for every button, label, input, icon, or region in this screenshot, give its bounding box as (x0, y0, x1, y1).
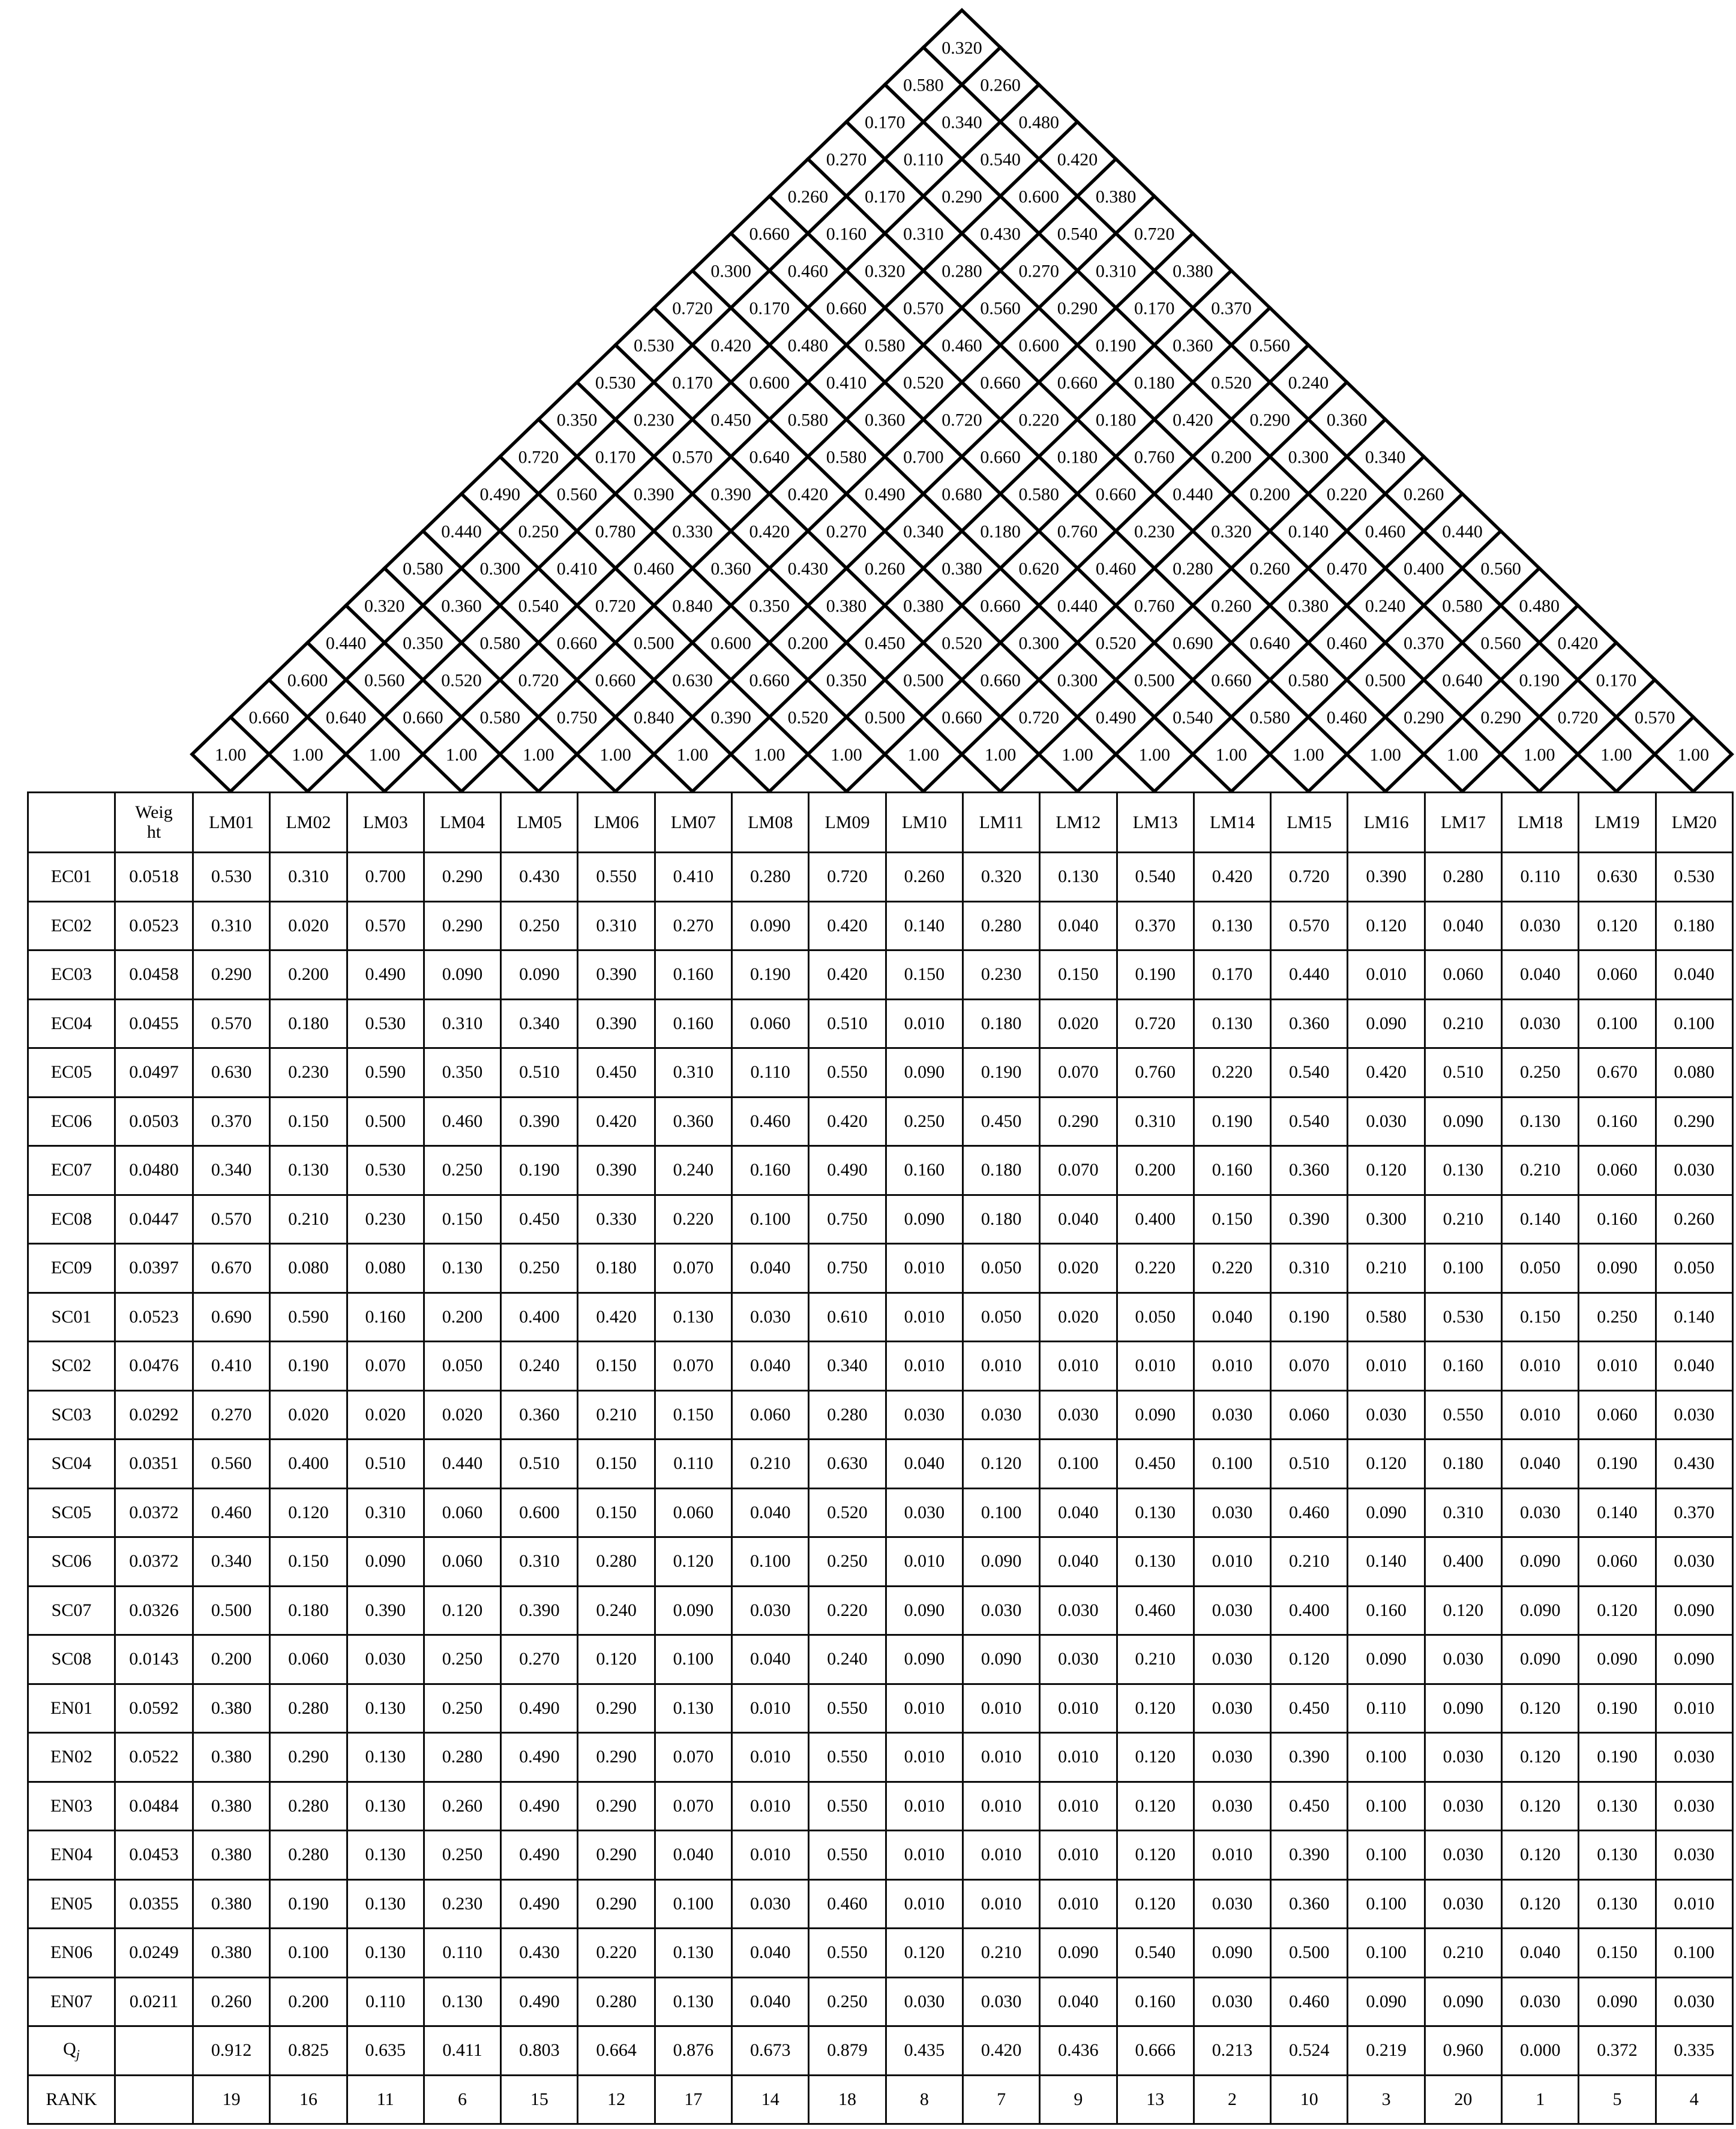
cell-EC09-LM02: 0.080 (270, 1244, 347, 1293)
cell-EN03-LM16: 0.100 (1348, 1782, 1425, 1831)
cell-EN07-LM01: 0.260 (193, 1977, 270, 2026)
roof-cell-LM16-LM18-value: 0.640 (1442, 671, 1483, 691)
cell-EN04-LM06: 0.290 (578, 1831, 655, 1880)
roof-cell-LM11-LM14-value: 0.520 (1096, 634, 1137, 653)
cell-SC05-LM16: 0.090 (1348, 1488, 1425, 1537)
roof-cell-LM02-LM18-value: 0.110 (904, 150, 943, 170)
cell-EN05-LM05: 0.490 (501, 1879, 578, 1929)
roof-cell-LM08-LM14-value: 0.180 (980, 522, 1021, 542)
cell-EN03-LM19: 0.130 (1579, 1782, 1656, 1831)
cell-EC08-LM18: 0.140 (1502, 1195, 1579, 1244)
roof-cell-LM07-LM08-value: 0.390 (710, 708, 751, 728)
cell-SC03-LM10: 0.030 (886, 1390, 963, 1440)
cell-EC05-LM18: 0.250 (1502, 1048, 1579, 1098)
cell-EN05-LM19: 0.130 (1579, 1879, 1656, 1929)
column-header-LM12: LM12 (1040, 793, 1117, 853)
cell-EN06-LM13: 0.540 (1117, 1929, 1194, 1978)
roof-cell-LM04-LM18-value: 0.430 (980, 224, 1021, 244)
cell-SC03-LM05: 0.360 (501, 1390, 578, 1440)
cell-EC06-LM13: 0.310 (1117, 1097, 1194, 1146)
cell-SC03-LM13: 0.090 (1117, 1390, 1194, 1440)
cell-SC01-LM17: 0.530 (1425, 1293, 1501, 1342)
cell-EN02-LM04: 0.280 (424, 1733, 500, 1782)
cell-SC01-LM02: 0.590 (270, 1293, 347, 1342)
score-LM13: 0.666 (1117, 2026, 1194, 2076)
roof-cell-LM01-LM15-value: 0.660 (749, 224, 790, 244)
cell-SC06-LM08: 0.100 (732, 1537, 809, 1587)
cell-EN06-LM07: 0.130 (655, 1929, 731, 1978)
cell-EN02-LM05: 0.490 (501, 1733, 578, 1782)
cell-EN07-LM12: 0.040 (1040, 1977, 1117, 2026)
cell-EC02-LM01: 0.310 (193, 901, 270, 950)
cell-EC01-LM10: 0.260 (886, 853, 963, 902)
roof-cell-LM01-LM13-value: 0.720 (672, 299, 713, 319)
cell-SC01-LM13: 0.050 (1117, 1293, 1194, 1342)
roof-cell-LM03-LM13-value: 0.600 (749, 373, 790, 393)
roof-cell-LM08-diagonal-value: 1.00 (754, 745, 785, 765)
cell-EC01-LM01: 0.530 (193, 853, 270, 902)
roof-cell-LM05-LM06-value: 0.750 (557, 708, 598, 728)
roof-cell-LM03-diagonal-value: 1.00 (369, 745, 401, 765)
cell-EC03-LM02: 0.200 (270, 950, 347, 1000)
roof-cell-LM03-LM18-value: 0.290 (942, 187, 982, 207)
row-label-SC06: SC06 (28, 1537, 115, 1587)
roof-cell-LM02-LM14-value: 0.170 (749, 299, 790, 319)
cell-SC01-LM04: 0.200 (424, 1293, 500, 1342)
roof-cell-LM16-diagonal-value: 1.00 (1369, 745, 1401, 765)
roof-cell-LM10-LM16-value: 0.230 (1134, 522, 1175, 542)
cell-EC09-LM11: 0.050 (963, 1244, 1039, 1293)
cell-EC07-LM12: 0.070 (1040, 1146, 1117, 1195)
cell-EC04-LM02: 0.180 (270, 999, 347, 1048)
cell-EN06-LM02: 0.100 (270, 1929, 347, 1978)
roof-cell-LM04-LM11-value: 0.390 (710, 485, 751, 505)
roof-cell-LM06-LM08-value: 0.630 (672, 671, 713, 691)
cell-EN02-LM01: 0.380 (193, 1733, 270, 1782)
cell-EC04-LM16: 0.090 (1348, 999, 1425, 1048)
row-EC09: EC090.03970.6700.0800.0800.1300.2500.180… (28, 1244, 1733, 1293)
cell-EC05-LM05: 0.510 (501, 1048, 578, 1098)
table-body: EC010.05180.5300.3100.7000.2900.4300.550… (28, 853, 1733, 2124)
row-label-EC03: EC03 (28, 950, 115, 1000)
row-rank: RANK1916116151217141887913210320154 (28, 2075, 1733, 2124)
cell-EN04-LM02: 0.280 (270, 1831, 347, 1880)
roof-cell-LM02-LM19-value: 0.340 (942, 113, 982, 133)
cell-SC06-LM19: 0.060 (1579, 1537, 1656, 1587)
cell-EC06-LM01: 0.370 (193, 1097, 270, 1146)
rank-LM07: 17 (655, 2075, 731, 2124)
cell-EC07-LM19: 0.060 (1579, 1146, 1656, 1195)
roof-cell-LM07-LM16-value: 0.220 (1019, 410, 1060, 430)
column-header-LM19: LM19 (1579, 793, 1656, 853)
cell-SC05-LM11: 0.100 (963, 1488, 1039, 1537)
roof-cell-LM07-LM14-value: 0.680 (942, 485, 982, 505)
cell-EC09-LM05: 0.250 (501, 1244, 578, 1293)
cell-EC01-LM11: 0.320 (963, 853, 1039, 902)
roof-cell-LM04-LM06-value: 0.720 (518, 671, 559, 691)
cell-EN02-LM19: 0.190 (1579, 1733, 1656, 1782)
cell-SC04-LM08: 0.210 (732, 1440, 809, 1489)
roof-cell-LM01-LM02-value: 0.660 (249, 708, 290, 728)
cell-SC03-LM20: 0.030 (1656, 1390, 1732, 1440)
roof-cell-LM12-LM20-value: 0.340 (1365, 448, 1406, 467)
column-header-LM05: LM05 (501, 793, 578, 853)
roof-cell-LM02-LM10-value: 0.170 (595, 448, 636, 467)
cell-EC08-LM10: 0.090 (886, 1195, 963, 1244)
roof-cell-LM05-LM09-value: 0.840 (672, 596, 713, 616)
cell-SC03-LM06: 0.210 (578, 1390, 655, 1440)
roof-cell-LM10-LM12-value: 0.660 (980, 671, 1021, 691)
row-label-EC05: EC05 (28, 1048, 115, 1098)
cell-SC05-LM18: 0.030 (1502, 1488, 1579, 1537)
cell-EC04-LM15: 0.360 (1271, 999, 1348, 1048)
cell-EC05-LM01: 0.630 (193, 1048, 270, 1098)
cell-EC02-LM16: 0.120 (1348, 901, 1425, 950)
cell-SC08-LM18: 0.090 (1502, 1635, 1579, 1684)
cell-EN01-LM01: 0.380 (193, 1684, 270, 1733)
weight-EN01: 0.0592 (115, 1684, 193, 1733)
cell-SC02-LM13: 0.010 (1117, 1342, 1194, 1391)
cell-SC05-LM19: 0.140 (1579, 1488, 1656, 1537)
cell-SC08-LM16: 0.090 (1348, 1635, 1425, 1684)
cell-SC08-LM15: 0.120 (1271, 1635, 1348, 1684)
cell-SC08-LM11: 0.090 (963, 1635, 1039, 1684)
cell-EN01-LM20: 0.010 (1656, 1684, 1732, 1733)
cell-EC05-LM11: 0.190 (963, 1048, 1039, 1098)
cell-EC05-LM03: 0.590 (347, 1048, 424, 1098)
cell-EN03-LM15: 0.450 (1271, 1782, 1348, 1831)
roof-cell-LM10-LM18-value: 0.200 (1211, 448, 1252, 467)
cell-EN05-LM02: 0.190 (270, 1879, 347, 1929)
cell-SC01-LM20: 0.140 (1656, 1293, 1732, 1342)
row-label-EN02: EN02 (28, 1733, 115, 1782)
cell-EC01-LM18: 0.110 (1502, 853, 1579, 902)
roof-cell-LM01-LM18-value: 0.170 (865, 113, 906, 133)
house-of-quality-page: 0.3200.5800.2600.1700.3400.4800.2700.110… (0, 0, 1736, 2129)
cell-SC07-LM17: 0.120 (1425, 1586, 1501, 1635)
cell-EC06-LM06: 0.420 (578, 1097, 655, 1146)
cell-SC07-LM05: 0.390 (501, 1586, 578, 1635)
corner-cell (28, 793, 115, 853)
column-header-LM01: LM01 (193, 793, 270, 853)
cell-SC02-LM01: 0.410 (193, 1342, 270, 1391)
score-LM17: 0.960 (1425, 2026, 1501, 2076)
cell-SC01-LM14: 0.040 (1194, 1293, 1270, 1342)
cell-SC02-LM03: 0.070 (347, 1342, 424, 1391)
row-label-SC02: SC02 (28, 1342, 115, 1391)
cell-EN04-LM17: 0.030 (1425, 1831, 1501, 1880)
cell-EC03-LM19: 0.060 (1579, 950, 1656, 1000)
cell-SC01-LM10: 0.010 (886, 1293, 963, 1342)
cell-EN03-LM12: 0.010 (1040, 1782, 1117, 1831)
cell-SC07-LM19: 0.120 (1579, 1586, 1656, 1635)
cell-EN04-LM13: 0.120 (1117, 1831, 1194, 1880)
cell-EC07-LM01: 0.340 (193, 1146, 270, 1195)
roof-cell-LM09-LM17-value: 0.760 (1134, 448, 1175, 467)
cell-EC06-LM16: 0.030 (1348, 1097, 1425, 1146)
cell-EN03-LM03: 0.130 (347, 1782, 424, 1831)
cell-SC08-LM02: 0.060 (270, 1635, 347, 1684)
cell-EN05-LM18: 0.120 (1502, 1879, 1579, 1929)
rank-weight-blank (115, 2075, 193, 2124)
cell-EC04-LM09: 0.510 (809, 999, 886, 1048)
cell-EC02-LM10: 0.140 (886, 901, 963, 950)
cell-EN03-LM17: 0.030 (1425, 1782, 1501, 1831)
cell-EC08-LM11: 0.180 (963, 1195, 1039, 1244)
weight-SC01: 0.0523 (115, 1293, 193, 1342)
cell-SC06-LM07: 0.120 (655, 1537, 731, 1587)
cell-EC07-LM18: 0.210 (1502, 1146, 1579, 1195)
roof-cell-LM14-LM16-value: 0.580 (1288, 671, 1329, 691)
roof-cell-LM02-LM08-value: 0.250 (518, 522, 559, 542)
cell-EN03-LM02: 0.280 (270, 1782, 347, 1831)
cell-EC09-LM19: 0.090 (1579, 1244, 1656, 1293)
score-label-base: Q (63, 2039, 76, 2059)
rank-LM03: 11 (347, 2075, 424, 2124)
cell-EN05-LM11: 0.010 (963, 1879, 1039, 1929)
roof-cell-LM03-LM11-value: 0.570 (672, 448, 713, 467)
cell-SC03-LM07: 0.150 (655, 1390, 731, 1440)
roof-cell-LM12-LM16-value: 0.260 (1211, 596, 1252, 616)
cell-SC04-LM06: 0.150 (578, 1440, 655, 1489)
cell-EC06-LM19: 0.160 (1579, 1097, 1656, 1146)
cell-EC06-LM18: 0.130 (1502, 1097, 1579, 1146)
cell-SC08-LM13: 0.210 (1117, 1635, 1194, 1684)
cell-EC09-LM03: 0.080 (347, 1244, 424, 1293)
roof-cell-LM10-LM20-value: 0.240 (1288, 373, 1329, 393)
roof-cell-LM03-LM05-value: 0.520 (441, 671, 482, 691)
roof-cell-LM16-LM17-value: 0.290 (1404, 708, 1444, 728)
roof-cell-LM11-LM13-value: 0.300 (1057, 671, 1098, 691)
cell-EC03-LM06: 0.390 (578, 950, 655, 1000)
row-EN07: EN070.02110.2600.2000.1100.1300.4900.280… (28, 1977, 1733, 2026)
cell-EC03-LM12: 0.150 (1040, 950, 1117, 1000)
score-label-subscript: j (76, 2047, 80, 2062)
roof-cell-LM02-LM11-value: 0.230 (634, 410, 674, 430)
roof-cell-LM07-LM12-value: 0.260 (865, 559, 906, 579)
cell-SC06-LM16: 0.140 (1348, 1537, 1425, 1587)
cell-EC04-LM12: 0.020 (1040, 999, 1117, 1048)
cell-EN04-LM20: 0.030 (1656, 1831, 1732, 1880)
cell-EC07-LM13: 0.200 (1117, 1146, 1194, 1195)
weight-SC03: 0.0292 (115, 1390, 193, 1440)
cell-EN01-LM03: 0.130 (347, 1684, 424, 1733)
score-LM02: 0.825 (270, 2026, 347, 2076)
row-SC08: SC080.01430.2000.0600.0300.2500.2700.120… (28, 1635, 1733, 1684)
row-label-EC04: EC04 (28, 999, 115, 1048)
cell-EC02-LM08: 0.090 (732, 901, 809, 950)
roof-cell-LM05-LM16-value: 0.460 (942, 336, 982, 356)
cell-EN03-LM07: 0.070 (655, 1782, 731, 1831)
roof-cell-LM07-LM19-value: 0.170 (1134, 299, 1175, 319)
cell-SC07-LM12: 0.030 (1040, 1586, 1117, 1635)
cell-EN03-LM09: 0.550 (809, 1782, 886, 1831)
cell-EC09-LM14: 0.220 (1194, 1244, 1270, 1293)
roof-cell-LM15-LM17-value: 0.500 (1365, 671, 1406, 691)
row-label-EN06: EN06 (28, 1929, 115, 1978)
roof-cell-LM07-LM13-value: 0.340 (903, 522, 944, 542)
cell-SC02-LM15: 0.070 (1271, 1342, 1348, 1391)
cell-EC03-LM01: 0.290 (193, 950, 270, 1000)
roof-cell-LM17-LM20-value: 0.420 (1558, 634, 1599, 653)
cell-EC01-LM12: 0.130 (1040, 853, 1117, 902)
cell-SC04-LM20: 0.430 (1656, 1440, 1732, 1489)
cell-SC04-LM10: 0.040 (886, 1440, 963, 1489)
cell-EC08-LM15: 0.390 (1271, 1195, 1348, 1244)
cell-EC08-LM14: 0.150 (1194, 1195, 1270, 1244)
cell-EN06-LM06: 0.220 (578, 1929, 655, 1978)
cell-EC03-LM10: 0.150 (886, 950, 963, 1000)
cell-EC01-LM07: 0.410 (655, 853, 731, 902)
column-header-LM07: LM07 (655, 793, 731, 853)
rank-LM13: 13 (1117, 2075, 1194, 2124)
cell-EC07-LM20: 0.030 (1656, 1146, 1732, 1195)
cell-EC05-LM06: 0.450 (578, 1048, 655, 1098)
roof-cell-LM03-LM07-value: 0.540 (518, 596, 559, 616)
cell-EN06-LM03: 0.130 (347, 1929, 424, 1978)
cell-SC04-LM15: 0.510 (1271, 1440, 1348, 1489)
roof-cell-LM05-LM08-value: 0.500 (634, 634, 674, 653)
cell-SC02-LM07: 0.070 (655, 1342, 731, 1391)
cell-EC09-LM07: 0.070 (655, 1244, 731, 1293)
roof-cell-LM05-LM13-value: 0.580 (826, 448, 867, 467)
roof-cell-LM05-LM18-value: 0.270 (1019, 262, 1060, 281)
roof-cell-LM15-LM18-value: 0.370 (1404, 634, 1444, 653)
roof-cell-LM18-diagonal-value: 1.00 (1524, 745, 1555, 765)
cell-EC03-LM09: 0.420 (809, 950, 886, 1000)
cell-EN01-LM10: 0.010 (886, 1684, 963, 1733)
cell-SC07-LM13: 0.460 (1117, 1586, 1194, 1635)
cell-EC04-LM11: 0.180 (963, 999, 1039, 1048)
column-header-LM20: LM20 (1656, 793, 1732, 853)
cell-EN01-LM19: 0.190 (1579, 1684, 1656, 1733)
roof-cell-LM07-diagonal-value: 1.00 (677, 745, 709, 765)
cell-EC02-LM11: 0.280 (963, 901, 1039, 950)
cell-SC01-LM12: 0.020 (1040, 1293, 1117, 1342)
cell-EC01-LM17: 0.280 (1425, 853, 1501, 902)
cell-EN04-LM04: 0.250 (424, 1831, 500, 1880)
score-LM08: 0.673 (732, 2026, 809, 2076)
roof-cell-LM10-diagonal-value: 1.00 (908, 745, 940, 765)
cell-EC01-LM14: 0.420 (1194, 853, 1270, 902)
roof-cell-LM05-LM11-value: 0.420 (749, 522, 790, 542)
roof-cell-LM03-LM04-value: 0.660 (403, 708, 443, 728)
row-label-EC08: EC08 (28, 1195, 115, 1244)
roof-cell-LM06-LM20-value: 0.720 (1134, 224, 1175, 244)
roof-cell-LM01-LM16-value: 0.260 (788, 187, 829, 207)
cell-EN01-LM16: 0.110 (1348, 1684, 1425, 1733)
roof-cell-LM06-LM18-value: 0.290 (1057, 299, 1098, 319)
cell-SC02-LM06: 0.150 (578, 1342, 655, 1391)
cell-SC05-LM20: 0.370 (1656, 1488, 1732, 1537)
column-header-LM02: LM02 (270, 793, 347, 853)
cell-EC07-LM14: 0.160 (1194, 1146, 1270, 1195)
weight-header: Weight (115, 793, 193, 853)
row-label-EC09: EC09 (28, 1244, 115, 1293)
rank-LM11: 7 (963, 2075, 1039, 2124)
roof-cell-LM14-LM17-value: 0.460 (1327, 634, 1368, 653)
cell-EN06-LM20: 0.100 (1656, 1929, 1732, 1978)
roof-cell-LM01-LM17-value: 0.270 (826, 150, 867, 170)
weight-EC02: 0.0523 (115, 901, 193, 950)
roof-cell-LM09-LM18-value: 0.420 (1173, 410, 1213, 430)
cell-EC06-LM02: 0.150 (270, 1097, 347, 1146)
cell-SC03-LM08: 0.060 (732, 1390, 809, 1440)
cell-EN05-LM16: 0.100 (1348, 1879, 1425, 1929)
cell-EN07-LM10: 0.030 (886, 1977, 963, 2026)
cell-EC08-LM03: 0.230 (347, 1195, 424, 1244)
cell-EN01-LM02: 0.280 (270, 1684, 347, 1733)
cell-EC05-LM08: 0.110 (732, 1048, 809, 1098)
roof-cell-LM11-LM19-value: 0.300 (1288, 448, 1329, 467)
cell-EN02-LM09: 0.550 (809, 1733, 886, 1782)
cell-SC07-LM09: 0.220 (809, 1586, 886, 1635)
roof-cell-LM02-LM03-value: 0.640 (326, 708, 367, 728)
weight-EN02: 0.0522 (115, 1733, 193, 1782)
roof-cell-LM09-LM10-value: 0.500 (865, 708, 906, 728)
cell-SC03-LM17: 0.550 (1425, 1390, 1501, 1440)
cell-EN07-LM06: 0.280 (578, 1977, 655, 2026)
roof-cell-LM08-LM15-value: 0.580 (1019, 485, 1060, 505)
cell-EN02-LM08: 0.010 (732, 1733, 809, 1782)
cell-SC06-LM13: 0.130 (1117, 1537, 1194, 1587)
rank-LM04: 6 (424, 2075, 500, 2124)
row-label-SC01: SC01 (28, 1293, 115, 1342)
cell-SC05-LM14: 0.030 (1194, 1488, 1270, 1537)
roof-cell-LM02-LM09-value: 0.560 (557, 485, 598, 505)
cell-SC07-LM01: 0.500 (193, 1586, 270, 1635)
header-row: WeightLM01LM02LM03LM04LM05LM06LM07LM08LM… (28, 793, 1733, 853)
cell-SC04-LM09: 0.630 (809, 1440, 886, 1489)
row-label-SC07: SC07 (28, 1586, 115, 1635)
score-LM12: 0.436 (1040, 2026, 1117, 2076)
cell-EC05-LM19: 0.670 (1579, 1048, 1656, 1098)
cell-SC08-LM10: 0.090 (886, 1635, 963, 1684)
roof-cell-LM12-LM14-value: 0.500 (1134, 671, 1175, 691)
cell-SC06-LM01: 0.340 (193, 1537, 270, 1587)
cell-SC07-LM20: 0.090 (1656, 1586, 1732, 1635)
roof-cell-LM05-LM14-value: 0.360 (865, 410, 906, 430)
row-label-SC04: SC04 (28, 1440, 115, 1489)
roof-cell-LM17-LM19-value: 0.190 (1519, 671, 1560, 691)
cell-SC06-LM11: 0.090 (963, 1537, 1039, 1587)
cell-EC09-LM17: 0.100 (1425, 1244, 1501, 1293)
rank-LM08: 14 (732, 2075, 809, 2124)
roof-cell-LM10-LM11-value: 0.660 (942, 708, 982, 728)
roof-cell-LM11-LM16-value: 0.280 (1173, 559, 1213, 579)
roof-cell-LM01-LM09-value: 0.720 (518, 448, 559, 467)
row-SC07: SC070.03260.5000.1800.3900.1200.3900.240… (28, 1586, 1733, 1635)
cell-SC06-LM10: 0.010 (886, 1537, 963, 1587)
cell-EC08-LM13: 0.400 (1117, 1195, 1194, 1244)
roof-cell-LM12-LM15-value: 0.690 (1173, 634, 1213, 653)
weight-EN06: 0.0249 (115, 1929, 193, 1978)
roof-cell-LM01-LM04-value: 0.440 (326, 634, 367, 653)
cell-SC05-LM08: 0.040 (732, 1488, 809, 1537)
cell-SC08-LM09: 0.240 (809, 1635, 886, 1684)
cell-EC09-LM01: 0.670 (193, 1244, 270, 1293)
cell-SC08-LM04: 0.250 (424, 1635, 500, 1684)
cell-EC01-LM13: 0.540 (1117, 853, 1194, 902)
cell-EC07-LM05: 0.190 (501, 1146, 578, 1195)
roof-cell-LM02-LM05-value: 0.350 (403, 634, 443, 653)
roof-cell-LM05-diagonal-value: 1.00 (523, 745, 554, 765)
roof-cell-LM01-LM14-value: 0.300 (710, 262, 751, 281)
roof-cell-LM06-LM11-value: 0.430 (788, 559, 829, 579)
score-LM07: 0.876 (655, 2026, 731, 2076)
cell-SC04-LM07: 0.110 (655, 1440, 731, 1489)
table-head: WeightLM01LM02LM03LM04LM05LM06LM07LM08LM… (28, 793, 1733, 853)
